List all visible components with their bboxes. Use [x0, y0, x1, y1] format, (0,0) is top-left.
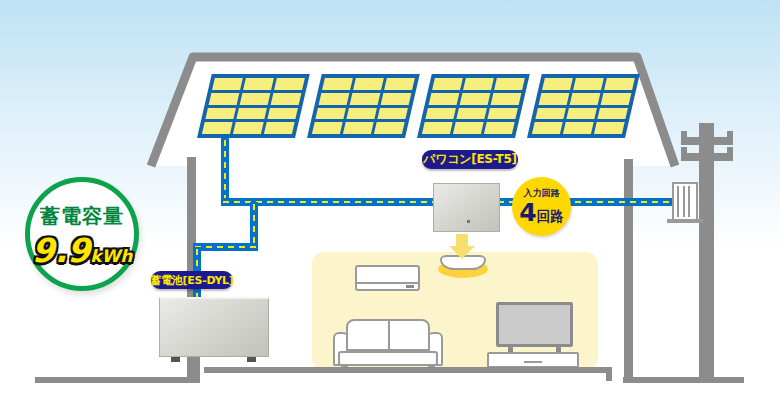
circuit-unit: 回路 — [537, 208, 564, 224]
solar-cell — [205, 108, 236, 120]
solar-cell — [460, 93, 491, 105]
solar-cell — [487, 108, 518, 120]
pole-crossarm-upper — [681, 137, 733, 145]
solar-cell — [346, 108, 377, 120]
house-wall-right — [624, 159, 633, 380]
solar-cell — [315, 108, 346, 120]
solar-panel — [307, 74, 420, 138]
solar-cell — [384, 78, 415, 90]
solar-cell — [377, 108, 408, 120]
solar-cell — [494, 78, 525, 90]
diagram-canvas: 蓄電池[ES-DYL] パワコン[ES-T5] 蓄電容量 9.9kWh 入力回路… — [0, 0, 780, 400]
solar-cell — [274, 78, 305, 90]
solar-cell — [484, 122, 515, 134]
solar-cell — [343, 122, 374, 134]
power-meter — [672, 182, 698, 221]
capacity-badge-title: 蓄電容量 — [30, 203, 134, 230]
sofa-seat — [338, 351, 438, 366]
solar-cell — [312, 122, 343, 134]
solar-cell — [463, 78, 494, 90]
battery-foot — [171, 357, 180, 362]
solar-cell — [236, 108, 267, 120]
solar-panel — [527, 74, 640, 138]
solar-cell — [322, 78, 353, 90]
house-floor-line — [204, 367, 612, 373]
solar-cell — [233, 122, 264, 134]
solar-panel — [417, 74, 530, 138]
solar-cell — [353, 78, 384, 90]
solar-cell — [240, 93, 271, 105]
solar-cell — [350, 93, 381, 105]
crossarm-tab — [681, 147, 687, 161]
battery-label: 蓄電池[ES-DYL] — [151, 271, 233, 289]
sofa-back — [346, 319, 430, 351]
crossarm-tab — [727, 147, 733, 161]
tv-screen — [496, 302, 573, 347]
capacity-unit: kWh — [90, 246, 132, 266]
solar-cell — [432, 78, 463, 90]
solar-cell — [271, 93, 302, 105]
power-conditioner-unit — [433, 183, 500, 232]
wire-branch-down — [250, 202, 258, 247]
inverter-label: パワコン[ES-T5] — [422, 150, 518, 169]
solar-cell — [264, 122, 295, 134]
solar-cell — [425, 108, 456, 120]
pole-crossarm-lower — [681, 153, 733, 161]
solar-cell — [594, 122, 625, 134]
capacity-value: 9.9 — [32, 231, 90, 270]
solar-cell — [456, 108, 487, 120]
capacity-badge: 蓄電容量 9.9kWh — [25, 177, 139, 291]
battery-foot — [247, 357, 256, 362]
solar-array — [197, 74, 625, 138]
crossarm-tab — [681, 131, 687, 145]
solar-cell — [604, 78, 635, 90]
wire-branch-left — [193, 243, 258, 251]
solar-cell — [539, 93, 570, 105]
solar-cell — [563, 122, 594, 134]
solar-cell — [374, 122, 405, 134]
solar-cell — [453, 122, 484, 134]
solar-cell — [243, 78, 274, 90]
solar-cell — [267, 108, 298, 120]
solar-cell — [212, 78, 243, 90]
solar-panel — [197, 74, 310, 138]
circuit-number: 4 — [519, 198, 536, 227]
solar-cell — [532, 122, 563, 134]
solar-cell — [573, 78, 604, 90]
floor-end-hook — [606, 367, 612, 381]
capacity-badge-value-row: 9.9kWh — [30, 231, 134, 270]
solar-cell — [209, 93, 240, 105]
input-circuit-badge: 入力回路 4回路 — [512, 177, 571, 236]
solar-cell — [422, 122, 453, 134]
solar-cell — [542, 78, 573, 90]
solar-cell — [601, 93, 632, 105]
utility-pole — [699, 123, 714, 380]
solar-cell — [381, 93, 412, 105]
crossarm-tab — [727, 131, 733, 145]
solar-cell — [202, 122, 233, 134]
circuit-badge-value-row: 4回路 — [512, 200, 571, 225]
tv-stand — [487, 352, 579, 368]
air-conditioner — [355, 265, 420, 291]
wire-panel-drop — [221, 138, 229, 206]
solar-cell — [570, 93, 601, 105]
solar-cell — [566, 108, 597, 120]
ground-line-left — [35, 377, 200, 383]
solar-cell — [429, 93, 460, 105]
solar-cell — [319, 93, 350, 105]
solar-cell — [491, 93, 522, 105]
ground-line-right — [623, 377, 744, 383]
battery-unit — [159, 297, 269, 357]
solar-cell — [535, 108, 566, 120]
power-flow-arrow-head — [449, 246, 475, 259]
solar-cell — [597, 108, 628, 120]
